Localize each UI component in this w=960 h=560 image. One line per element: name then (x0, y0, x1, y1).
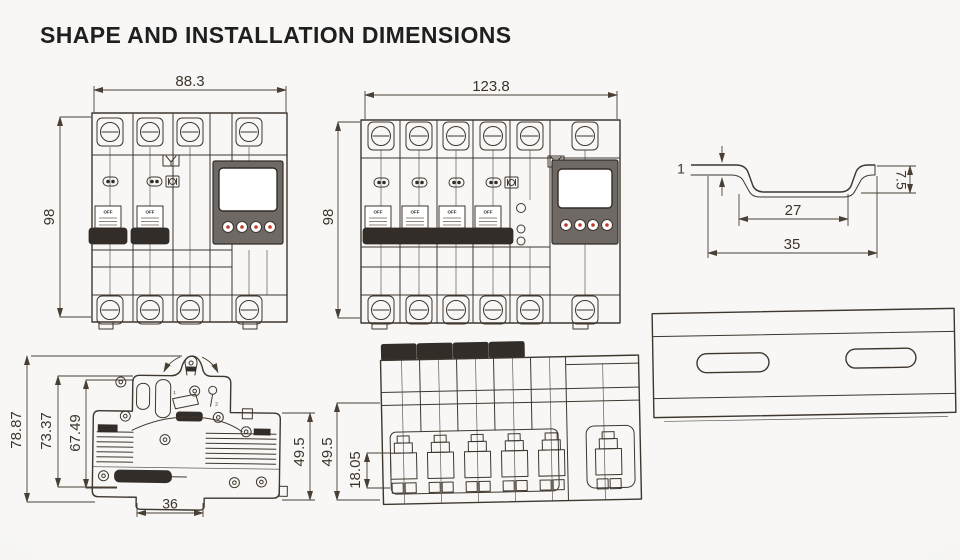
din-clip (114, 470, 171, 483)
vent-slats-right (206, 433, 276, 464)
terminal-screw (572, 122, 598, 150)
panel-button (575, 220, 586, 231)
terminal-screw (177, 118, 203, 146)
terminal-screw (137, 118, 163, 146)
toggle-handle-bar (363, 228, 513, 244)
mech-label-2: 2 (215, 402, 218, 408)
dim-label-side-total-height: 78.87 (8, 411, 25, 449)
terminal-screw (137, 296, 163, 324)
din-rail-top-view (652, 308, 956, 421)
toggle-handle (131, 228, 169, 244)
rotate-arrow-right (202, 357, 218, 372)
terminal-screw (443, 122, 469, 150)
terminal-screw (517, 122, 543, 150)
toggle-handle (89, 228, 127, 244)
dim-label-height-4p: 98 (320, 209, 337, 226)
terminal-screw (406, 296, 432, 324)
indicator-window (147, 177, 162, 186)
panel-button (588, 220, 599, 231)
toggle-handle-top (417, 343, 452, 360)
side-body-outline (92, 355, 281, 512)
panel-button (237, 222, 248, 233)
case-screw (116, 377, 126, 387)
terminal-block-frame (390, 429, 559, 495)
bottom-view: 49.5 18.05 (319, 339, 642, 504)
dim-label-bottom-depth: 49.5 (319, 437, 336, 466)
case-screw (98, 471, 108, 481)
terminal-screw (236, 118, 262, 146)
case-screw (229, 478, 239, 488)
indicator-window (486, 178, 501, 187)
panel-button (602, 220, 613, 231)
indicator-window (412, 178, 427, 187)
case-screw (160, 435, 170, 445)
terminal-screw (97, 296, 123, 324)
dim-label-rail-outer-width: 35 (784, 236, 801, 253)
toggle-switch-head (439, 206, 465, 228)
rail-mounting-slot (846, 348, 916, 368)
indicator-window (374, 178, 389, 187)
drawing-page: SHAPE AND INSTALLATION DIMENSIONS (0, 0, 960, 560)
dim-label-rail-height: 7.5 (893, 170, 909, 190)
toggle-switch-head (137, 206, 163, 228)
rating-label (254, 429, 270, 435)
bottom-terminal (595, 431, 622, 489)
panel-button (265, 222, 276, 233)
terminal-screw (406, 122, 432, 150)
rail-profile-outer (691, 165, 875, 192)
terminal-screw (97, 118, 123, 146)
dimensions-drawing: OFF (0, 0, 960, 560)
terminal-screw (177, 296, 203, 324)
dim-label-width-4p: 123.8 (472, 78, 510, 95)
front-view-4pole: 123.8 98 (320, 78, 620, 329)
toggle-switch-head (365, 206, 391, 228)
panel-button (561, 220, 572, 231)
terminal-screw (517, 296, 543, 324)
brand-label (98, 425, 117, 432)
dim-label-rail-inner-width: 27 (785, 202, 802, 219)
terminal-screw (480, 122, 506, 150)
reset-indicator (505, 177, 518, 188)
mech-label-1: 1 (173, 390, 176, 396)
terminal-screw (368, 122, 394, 150)
dim-label-side-inner-height: 67.49 (67, 414, 84, 452)
panel-button (251, 222, 262, 233)
side-view: 78.87 73.37 67.49 49.5 36 (8, 355, 315, 517)
rotate-arrow-left (164, 357, 180, 372)
rail-mounting-slot (697, 353, 769, 373)
dim-label-terminal-depth: 18.05 (347, 451, 364, 489)
dim-label-height-2p: 98 (41, 209, 58, 226)
toggle-switch-head (95, 206, 121, 228)
terminal-screw (368, 296, 394, 324)
case-screw (256, 477, 266, 487)
toggle-handle-top (453, 342, 488, 359)
panel-button (223, 222, 234, 233)
dim-label-side-mid-height: 73.37 (38, 412, 55, 450)
rail-profile-inner (691, 175, 875, 197)
indicator-window (449, 178, 464, 187)
terminal-screw (443, 296, 469, 324)
dim-label-rail-thickness: 1 (677, 161, 685, 177)
terminal-screw (572, 296, 598, 324)
dim-label-width-2p: 88.3 (175, 73, 204, 90)
toggle-switch-head (402, 206, 428, 228)
front-view-2pole: 88.3 98 (41, 73, 287, 329)
terminal-screw (480, 296, 506, 324)
indicator-window (103, 177, 118, 186)
din-rail-profile: 1 7.5 27 35 (677, 146, 916, 258)
case-screw (120, 411, 130, 421)
display-screen (558, 169, 612, 208)
display-screen (219, 168, 277, 211)
vent-slats-left (97, 432, 133, 462)
rail-latch (279, 486, 287, 496)
dim-label-side-depth: 49.5 (291, 437, 308, 466)
toggle-switch-head (475, 206, 501, 228)
toggle-handle-top (381, 344, 416, 361)
toggle-handle-top (489, 341, 524, 358)
terminal-screw (236, 296, 262, 324)
